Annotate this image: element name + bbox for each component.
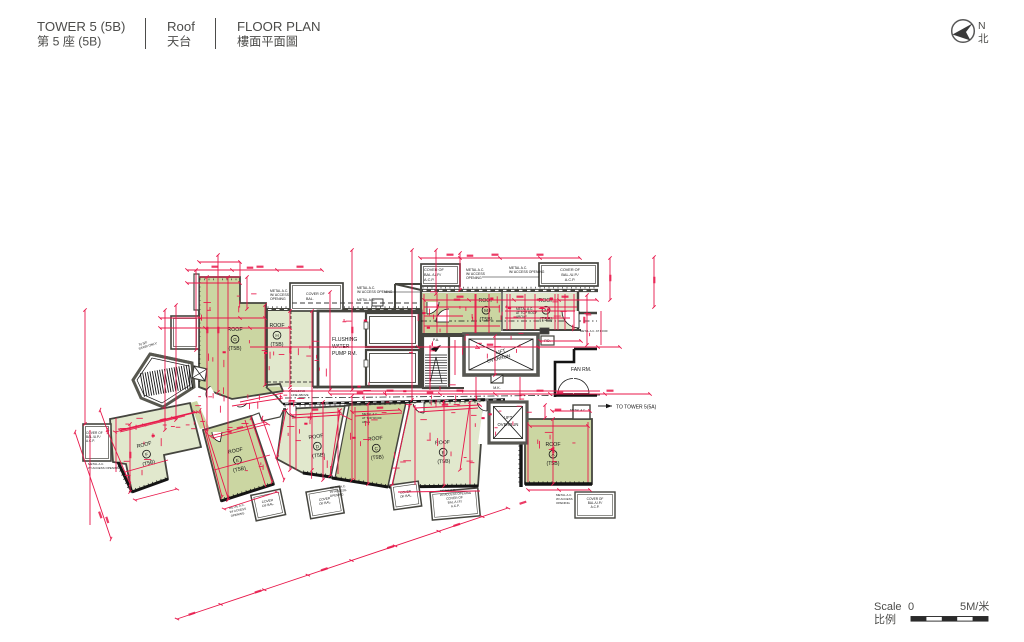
svg-text:0: 0	[908, 601, 914, 613]
svg-text:OPENING: OPENING	[466, 276, 482, 280]
svg-text:FLUSHING: FLUSHING	[332, 337, 357, 343]
svg-text:ROOF: ROOF	[435, 440, 450, 447]
svg-text:BAL.: BAL.	[306, 297, 314, 301]
svg-text:LINE ABOVE: LINE ABOVE	[291, 393, 309, 397]
svg-text:H: H	[275, 333, 278, 338]
svg-text:W/ ACCESS OPENING: W/ ACCESS OPENING	[88, 466, 120, 470]
svg-text:TOWER 5 (5B): TOWER 5 (5B)	[37, 19, 125, 34]
svg-text:FAN RM.: FAN RM.	[571, 367, 591, 373]
svg-text:第 5 座 (5B): 第 5 座 (5B)	[37, 34, 101, 49]
svg-text:P.A.: P.A.	[433, 338, 439, 342]
svg-text:Roof: Roof	[167, 19, 195, 34]
svg-text:天台: 天台	[167, 34, 191, 49]
svg-text:5M/米: 5M/米	[960, 600, 989, 613]
svg-text:(T5B): (T5B)	[229, 346, 242, 352]
svg-text:BAL./U.P./: BAL./U.P./	[424, 273, 442, 277]
svg-text:METAL A.C. AT ROOF: METAL A.C. AT ROOF	[580, 329, 608, 333]
svg-text:G: G	[233, 337, 237, 342]
svg-text:Scale: Scale	[874, 601, 902, 613]
svg-text:比例: 比例	[874, 612, 896, 626]
svg-text:PUMP RM.: PUMP RM.	[332, 351, 357, 357]
svg-text:A.C.P.: A.C.P.	[424, 278, 434, 282]
svg-text:BAL./U.P./: BAL./U.P./	[561, 273, 579, 277]
svg-text:OPENING: OPENING	[270, 297, 286, 301]
svg-text:OPENING: OPENING	[330, 492, 345, 498]
svg-text:COVER OF: COVER OF	[306, 292, 326, 296]
svg-text:北: 北	[978, 33, 989, 45]
svg-text:A.C.P.: A.C.P.	[565, 278, 575, 282]
svg-text:N: N	[978, 20, 986, 32]
svg-text:COVER OF: COVER OF	[424, 268, 445, 272]
svg-text:COVER OF: COVER OF	[560, 268, 581, 272]
svg-text:W/ ACCESS OPENING: W/ ACCESS OPENING	[509, 270, 545, 274]
svg-text:LIFT: LIFT	[504, 415, 513, 420]
svg-text:OVERRUN: OVERRUN	[498, 422, 519, 427]
svg-text:A.C.P.: A.C.P.	[591, 505, 600, 509]
svg-text:OPENING: OPENING	[556, 501, 571, 505]
svg-text:M.K.: M.K.	[493, 386, 500, 390]
svg-text:TO TOWER 5(5A): TO TOWER 5(5A)	[616, 405, 657, 411]
svg-text:A.C.P.: A.C.P.	[86, 439, 95, 443]
svg-text:樓面平面圖: 樓面平面圖	[237, 34, 298, 49]
svg-text:M: M	[484, 308, 488, 313]
svg-text:FLOOR PLAN: FLOOR PLAN	[237, 19, 321, 34]
svg-text:A.C.P.: A.C.P.	[451, 504, 460, 509]
svg-text:(T5B): (T5B)	[480, 317, 493, 323]
